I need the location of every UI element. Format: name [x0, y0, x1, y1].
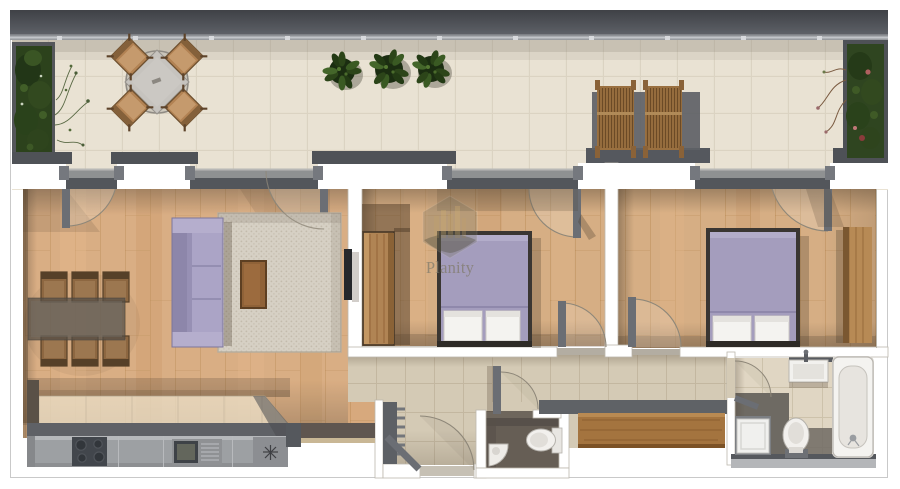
svg-text:Planity: Planity — [426, 258, 475, 277]
